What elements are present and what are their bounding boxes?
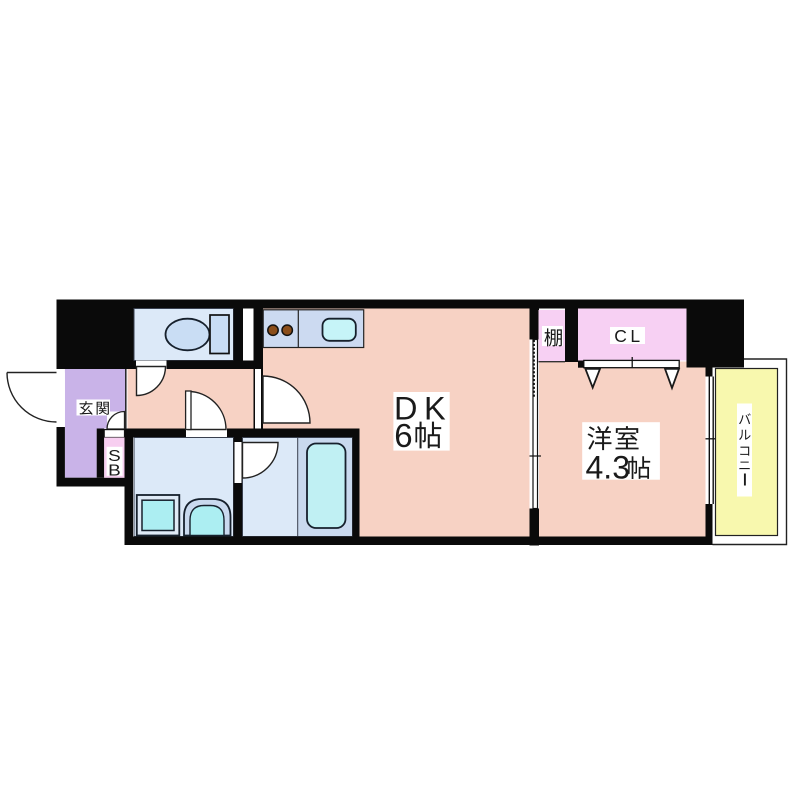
svg-text:6: 6 — [394, 417, 412, 454]
svg-text:B: B — [108, 462, 121, 479]
svg-text:4.3: 4.3 — [586, 450, 630, 486]
svg-text:CL: CL — [614, 326, 643, 346]
